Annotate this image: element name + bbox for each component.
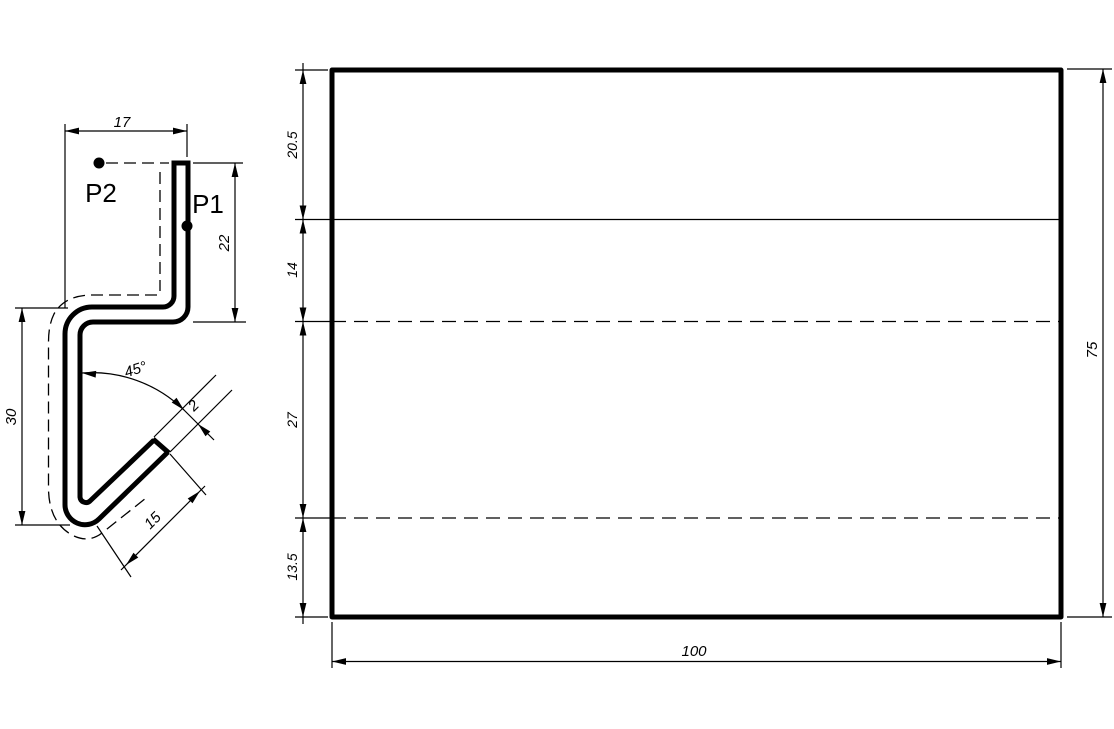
- dim-label-right-height: 22: [216, 234, 233, 252]
- arrowhead: [65, 128, 79, 135]
- arrowhead: [300, 504, 307, 518]
- arrowhead: [300, 322, 307, 336]
- technical-drawing: P2 P1 17 22 30: [0, 0, 1114, 729]
- dim-top-width: 17: [65, 114, 187, 308]
- flat-pattern-outline: [332, 70, 1061, 617]
- dim-total-height: 75: [1067, 69, 1112, 617]
- flat-view: 20.5 14 27 13.5 75 100: [284, 63, 1112, 668]
- dim-flange-length: 15: [97, 454, 206, 577]
- arrowhead: [173, 128, 187, 135]
- dim-label-total-height: 75: [1084, 341, 1101, 358]
- dim-right-height: 22: [193, 163, 246, 322]
- arrowhead: [1047, 658, 1061, 665]
- dim-label-segment-1: 20.5: [284, 131, 300, 159]
- arrowhead: [232, 308, 239, 322]
- point-p2-marker: [94, 158, 105, 169]
- extension-line: [154, 375, 216, 437]
- dim-left-height: 30: [3, 308, 70, 525]
- dim-total-width: 100: [332, 622, 1061, 668]
- dim-label-segment-3: 27: [284, 411, 300, 429]
- point-p2-label: P2: [85, 178, 117, 208]
- arrowhead: [1100, 603, 1107, 617]
- dim-label-total-width: 100: [681, 643, 707, 660]
- dim-label-top-width: 17: [114, 114, 131, 131]
- dim-label-bend-angle: 45°: [122, 358, 149, 381]
- extension-line: [170, 390, 232, 452]
- point-p1-marker: [182, 221, 193, 232]
- arrowhead: [19, 308, 26, 322]
- extension-line: [97, 526, 131, 577]
- arrowhead: [300, 603, 307, 617]
- arrowhead: [1100, 69, 1107, 83]
- arrowhead: [300, 518, 307, 532]
- dim-bend-angle: 45°: [82, 358, 187, 412]
- arrowhead: [300, 308, 307, 322]
- dim-label-left-height: 30: [3, 408, 20, 425]
- dim-label-segment-2: 14: [284, 262, 300, 278]
- arrowhead: [82, 370, 97, 378]
- profile-view: P2 P1 17 22 30: [3, 114, 246, 577]
- arrowhead: [19, 511, 26, 525]
- extension-line: [170, 454, 206, 495]
- dim-thickness: 2: [154, 375, 232, 452]
- cad-drawing-canvas: P2 P1 17 22 30: [0, 0, 1114, 729]
- arrowhead: [300, 70, 307, 84]
- arrowhead: [300, 206, 307, 220]
- profile-tip-cap: [153, 439, 169, 453]
- arrowhead: [332, 658, 346, 665]
- dim-chain-left: 20.5 14 27 13.5: [284, 63, 332, 624]
- dim-label-segment-4: 13.5: [284, 553, 300, 580]
- arrowhead: [232, 163, 239, 177]
- arrowhead: [300, 220, 307, 234]
- point-p1-label: P1: [192, 189, 224, 219]
